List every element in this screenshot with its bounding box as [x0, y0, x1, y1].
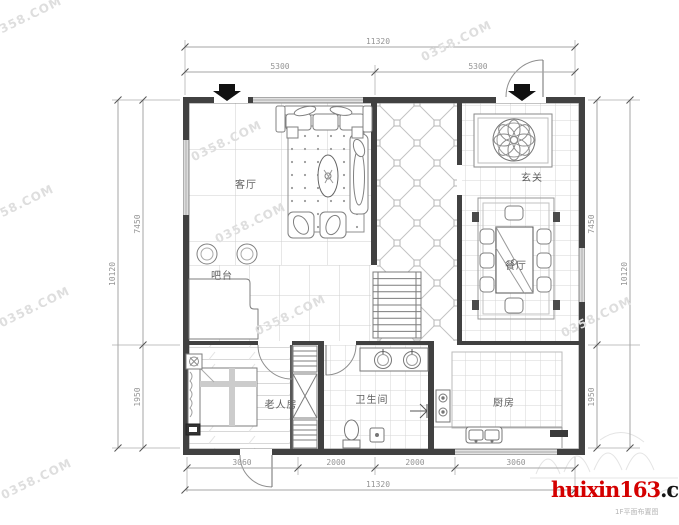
wall-bath-west	[318, 341, 324, 455]
chaise-icon	[350, 134, 368, 214]
window-living-top	[253, 97, 363, 103]
window-left	[183, 140, 189, 215]
dim-left-seg1: 7450	[133, 214, 142, 233]
label-elder-room: 老人房	[265, 398, 298, 411]
bar-counter-icon	[189, 279, 258, 339]
dim-left-outer: 10120	[108, 262, 117, 286]
label-living-room: 客厅	[235, 178, 257, 191]
label-bar: 吧台	[211, 269, 233, 282]
dim-bottom-seg4: 3060	[506, 458, 525, 467]
side-table-icon	[287, 127, 298, 138]
toilet-icon	[343, 420, 360, 448]
label-foyer: 玄关	[521, 171, 543, 184]
dim-right-seg2: 1950	[587, 387, 596, 406]
window-kitchen-bottom	[455, 449, 557, 455]
coffee-table-icon	[318, 155, 338, 197]
wall-bath-top	[356, 341, 428, 345]
kitchen-tiles	[452, 352, 562, 428]
kitchen-sink-icon	[466, 427, 502, 443]
staircase-icon	[373, 272, 421, 338]
window-right-dining	[579, 248, 585, 302]
nightstand-icon	[186, 354, 202, 369]
dim-bottom-overall: 11320	[366, 480, 390, 489]
wall-hall-foyer	[457, 103, 462, 165]
wall-hall-dining	[457, 195, 462, 345]
opening-bottom-door	[240, 449, 272, 455]
ceiling-medallion-icon	[474, 114, 552, 167]
stove-icon	[436, 390, 450, 422]
wall-elder-top-left	[189, 341, 258, 345]
vanity-sink-icon	[360, 348, 428, 371]
brand-site-name: huixin163	[551, 477, 660, 502]
brand-tld: .com	[660, 477, 679, 502]
appliance-icon	[550, 430, 568, 437]
dim-right-outer: 10120	[620, 262, 629, 286]
tv-icon	[186, 424, 200, 435]
floor-plan-page: 11320 5300 5300 7450 1950 10120 7450 195…	[0, 0, 679, 525]
shaft-icon	[293, 346, 317, 448]
dim-left-seg2: 1950	[133, 387, 142, 406]
huixin163-watermark: huixin163.com	[551, 477, 679, 502]
label-bathroom: 卫生间	[356, 393, 389, 406]
label-kitchen: 厨房	[493, 396, 515, 409]
plan-caption: 1F平面布置图	[615, 507, 658, 517]
drain-dot	[376, 434, 379, 437]
dim-bottom-seg3: 2000	[405, 458, 424, 467]
dining-table-icon	[496, 227, 533, 293]
dim-right-seg1: 7450	[587, 214, 596, 233]
dim-bottom-seg1: 3060	[232, 458, 251, 467]
dim-top-overall: 11320	[366, 37, 390, 46]
label-dining-room: 餐厅	[505, 259, 527, 272]
wall-elder-top-right	[292, 341, 318, 345]
dim-top-seg1: 5300	[270, 62, 289, 71]
wall-kitchen-top	[458, 341, 579, 345]
dim-top-seg2: 5300	[468, 62, 487, 71]
bed-icon	[188, 368, 257, 428]
floor-plan-drawing: 11320 5300 5300 7450 1950 10120 7450 195…	[0, 0, 679, 525]
dim-bottom-seg2: 2000	[326, 458, 345, 467]
wall-bath-east	[428, 341, 434, 455]
side-table-icon	[352, 127, 363, 138]
